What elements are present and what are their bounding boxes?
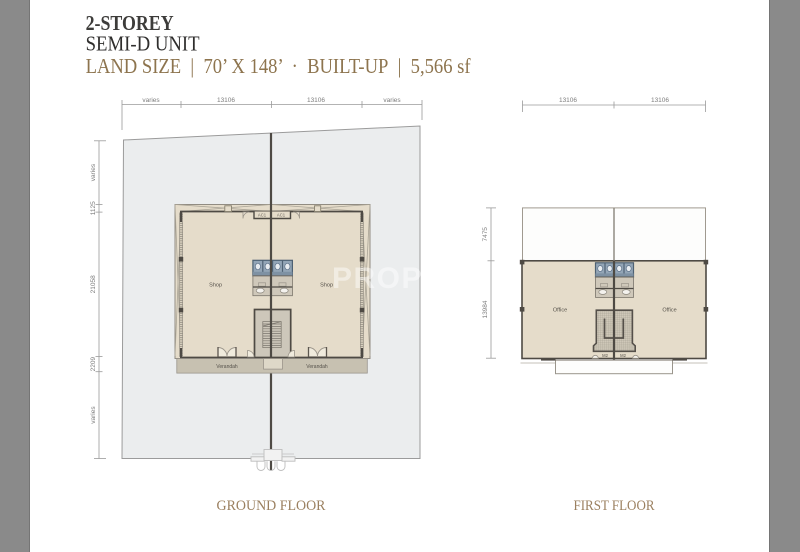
svg-text:Shop: Shop [209, 283, 222, 289]
svg-text:21058: 21058 [90, 275, 97, 293]
svg-text:Verandah: Verandah [306, 364, 328, 370]
svg-text:LAND SIZE | 70’ X 148’ · B: LAND SIZE | 70’ X 148’ · BUILT-UP | 5,56… [86, 54, 472, 78]
svg-text:M2: M2 [620, 353, 626, 358]
svg-text:AC1: AC1 [277, 213, 286, 218]
svg-text:SEMI-D UNIT: SEMI-D UNIT [86, 32, 200, 56]
svg-text:varies: varies [90, 163, 97, 181]
svg-text:13984: 13984 [482, 300, 489, 318]
svg-text:varies: varies [90, 406, 97, 424]
svg-text:varies: varies [383, 97, 401, 104]
svg-text:13106: 13106 [651, 97, 669, 104]
svg-text:M2: M2 [602, 353, 608, 358]
svg-text:AC1: AC1 [258, 213, 267, 218]
svg-text:Office: Office [553, 308, 567, 314]
svg-text:2209: 2209 [90, 356, 97, 371]
svg-text:varies: varies [142, 97, 160, 104]
svg-text:Office: Office [662, 308, 676, 314]
svg-text:13106: 13106 [307, 97, 325, 104]
svg-text:13106: 13106 [559, 97, 577, 104]
svg-text:Verandah: Verandah [216, 364, 238, 370]
svg-text:GROUND FLOOR: GROUND FLOOR [217, 498, 326, 514]
svg-text:7475: 7475 [482, 227, 489, 242]
svg-text:13106: 13106 [217, 97, 235, 104]
svg-text:1125: 1125 [90, 201, 97, 215]
svg-text:PROPER: PROPER [332, 262, 468, 295]
svg-text:FIRST FLOOR: FIRST FLOOR [574, 498, 655, 514]
